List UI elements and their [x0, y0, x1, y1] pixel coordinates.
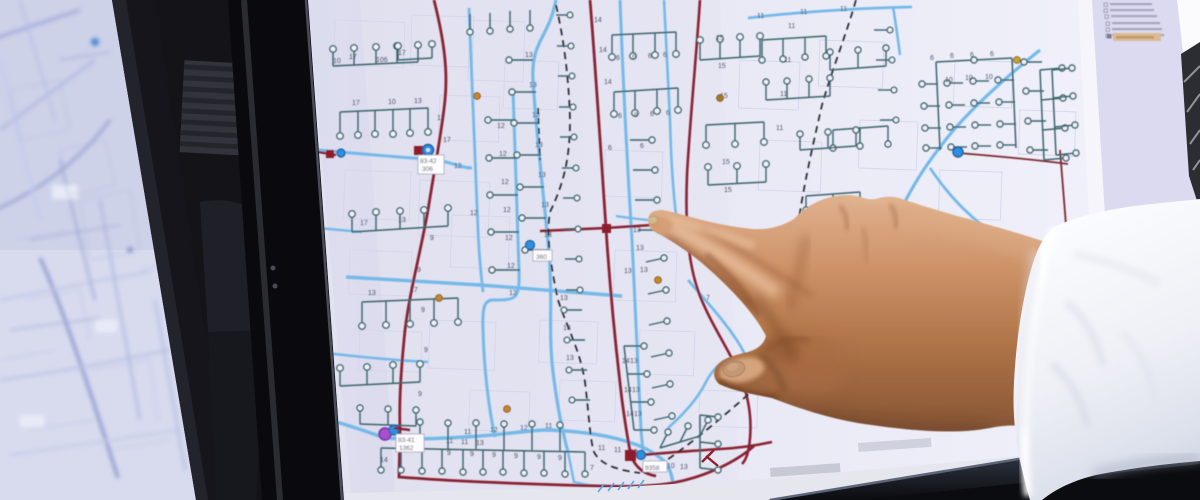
svg-text:13: 13 — [414, 98, 422, 105]
svg-text:10: 10 — [985, 74, 993, 81]
svg-text:9: 9 — [492, 452, 496, 459]
svg-text:12: 12 — [503, 207, 511, 214]
svg-text:14: 14 — [594, 17, 602, 24]
svg-text:6: 6 — [990, 51, 994, 58]
svg-text:9358: 9358 — [645, 465, 660, 472]
svg-text:10: 10 — [333, 58, 341, 65]
svg-text:11: 11 — [446, 438, 453, 445]
svg-text:11: 11 — [464, 429, 471, 436]
svg-text:14: 14 — [624, 387, 632, 394]
svg-text:12: 12 — [497, 123, 505, 130]
svg-text:9: 9 — [424, 347, 428, 354]
svg-text:11: 11 — [545, 423, 552, 430]
svg-text:6: 6 — [648, 53, 652, 60]
svg-text:7: 7 — [590, 465, 594, 472]
svg-text:6: 6 — [618, 113, 622, 120]
svg-text:9: 9 — [447, 450, 451, 457]
svg-text:11: 11 — [461, 439, 468, 446]
svg-text:12: 12 — [507, 263, 515, 270]
svg-text:6: 6 — [632, 54, 636, 61]
svg-text:7: 7 — [706, 295, 710, 302]
svg-text:12: 12 — [470, 210, 478, 217]
svg-text:13: 13 — [563, 325, 571, 332]
svg-text:11: 11 — [784, 57, 791, 64]
svg-text:17: 17 — [352, 100, 360, 107]
svg-text:12: 12 — [520, 425, 528, 432]
svg-text:11: 11 — [780, 91, 787, 98]
svg-text:15: 15 — [722, 159, 730, 166]
svg-text:6: 6 — [634, 112, 638, 119]
svg-text:9: 9 — [421, 307, 425, 314]
svg-text:13: 13 — [532, 112, 540, 119]
svg-text:11: 11 — [598, 445, 605, 452]
svg-text:17: 17 — [398, 50, 406, 57]
svg-text:13: 13 — [398, 217, 406, 224]
svg-text:15: 15 — [718, 63, 726, 70]
svg-text:360: 360 — [536, 254, 547, 261]
svg-text:15: 15 — [724, 187, 732, 194]
svg-text:12: 12 — [499, 151, 507, 158]
svg-text:11: 11 — [614, 447, 621, 454]
svg-text:6: 6 — [970, 52, 974, 59]
svg-text:13: 13 — [636, 245, 644, 252]
svg-text:11: 11 — [776, 125, 783, 132]
svg-text:13: 13 — [476, 440, 484, 447]
svg-text:14: 14 — [604, 79, 612, 86]
svg-text:9: 9 — [417, 267, 421, 274]
svg-text:12: 12 — [505, 235, 513, 242]
svg-text:12: 12 — [490, 427, 498, 434]
svg-text:12: 12 — [501, 179, 509, 186]
svg-text:6: 6 — [608, 145, 612, 152]
svg-text:13: 13 — [680, 464, 688, 471]
svg-text:17: 17 — [437, 115, 445, 122]
svg-text:11: 11 — [800, 9, 807, 16]
svg-text:13: 13 — [630, 358, 638, 365]
svg-text:17: 17 — [410, 287, 418, 294]
svg-text:6: 6 — [950, 53, 954, 60]
svg-text:13: 13 — [525, 52, 533, 59]
svg-text:13: 13 — [633, 227, 641, 234]
svg-text:9: 9 — [537, 454, 541, 461]
svg-text:11: 11 — [840, 6, 847, 13]
svg-text:14: 14 — [380, 457, 388, 464]
svg-text:6: 6 — [930, 55, 934, 62]
svg-text:13: 13 — [368, 290, 376, 297]
svg-text:13: 13 — [544, 232, 552, 239]
svg-text:13: 13 — [529, 82, 537, 89]
svg-text:13: 13 — [560, 295, 568, 302]
svg-text:9: 9 — [514, 453, 518, 460]
svg-text:13: 13 — [634, 411, 642, 418]
svg-text:14: 14 — [599, 47, 607, 54]
svg-text:10: 10 — [388, 99, 396, 106]
svg-text:14: 14 — [622, 358, 630, 365]
svg-text:13: 13 — [632, 387, 640, 394]
svg-text:6: 6 — [640, 143, 644, 150]
svg-text:83-42: 83-42 — [420, 158, 437, 165]
svg-text:11: 11 — [757, 13, 764, 20]
svg-text:15: 15 — [716, 35, 724, 42]
svg-text:6: 6 — [616, 55, 620, 62]
svg-text:10: 10 — [667, 463, 675, 470]
svg-text:6: 6 — [666, 110, 670, 117]
svg-text:13: 13 — [541, 202, 549, 209]
svg-text:13: 13 — [640, 267, 648, 274]
svg-text:17: 17 — [349, 54, 357, 61]
svg-text:6: 6 — [663, 52, 667, 59]
svg-text:9: 9 — [470, 451, 474, 458]
svg-text:83-41: 83-41 — [398, 437, 415, 444]
svg-text:17: 17 — [443, 137, 451, 144]
svg-text:12: 12 — [509, 290, 517, 297]
svg-text:6: 6 — [650, 111, 654, 118]
svg-text:106: 106 — [376, 57, 388, 64]
svg-text:13: 13 — [624, 268, 632, 275]
svg-text:9: 9 — [418, 391, 422, 398]
svg-text:10: 10 — [945, 77, 953, 84]
svg-text:1362: 1362 — [399, 445, 414, 452]
svg-text:14: 14 — [626, 411, 634, 418]
svg-text:9: 9 — [430, 235, 434, 242]
svg-text:306: 306 — [422, 166, 433, 173]
svg-text:13: 13 — [538, 172, 546, 179]
svg-text:9: 9 — [558, 455, 562, 462]
svg-text:11: 11 — [788, 23, 795, 30]
svg-text:13: 13 — [535, 142, 543, 149]
svg-text:17: 17 — [360, 220, 368, 227]
svg-text:12: 12 — [454, 163, 462, 170]
svg-text:10: 10 — [965, 75, 973, 82]
svg-text:13: 13 — [566, 355, 574, 362]
